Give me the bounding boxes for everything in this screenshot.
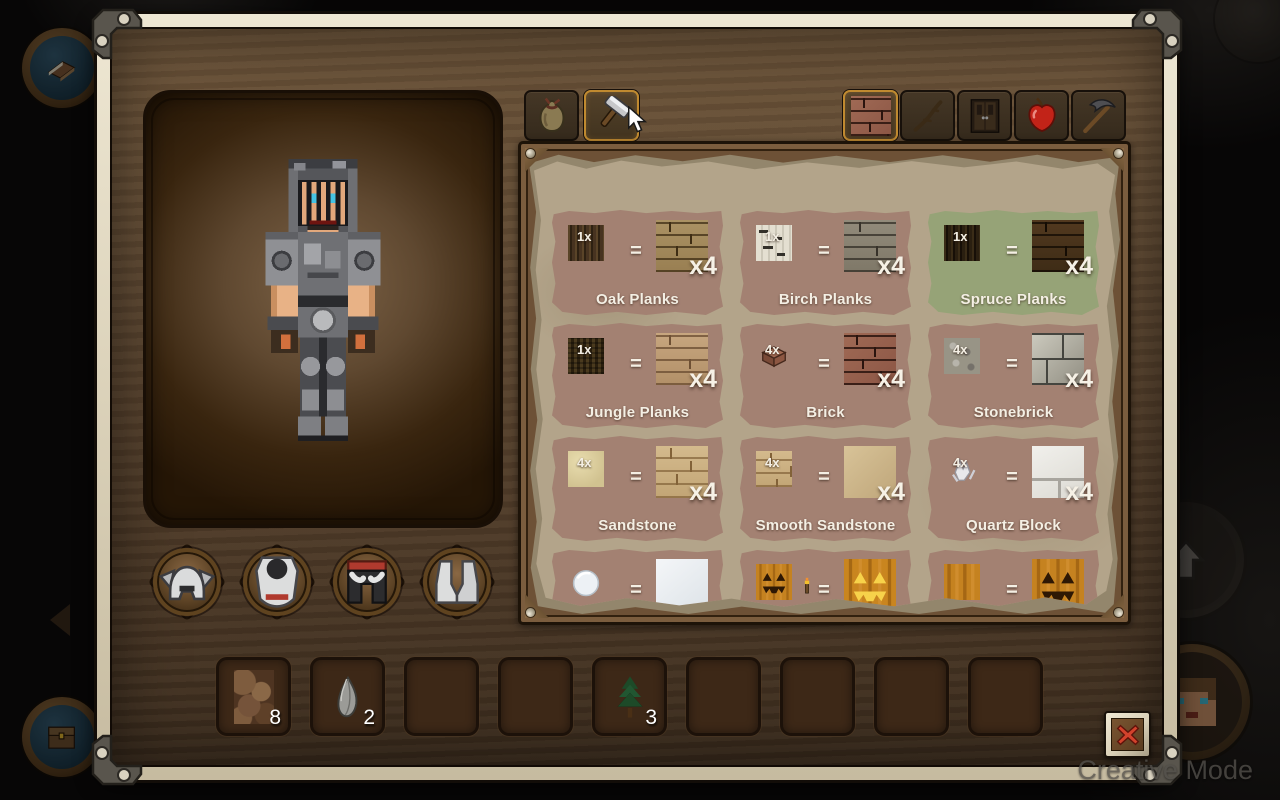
recipe-card-oak-planks[interactable]: 1x = x4 Oak Planks [552,210,723,315]
item-count: 8 [269,706,281,730]
result-count: x4 [1065,478,1093,507]
recipe-name: Sandstone [552,517,723,534]
recipe-card-spruce-planks[interactable]: 1x = x4 Spruce Planks [928,210,1099,315]
armor-slot-helmet[interactable] [150,545,224,619]
inset-corner [525,148,549,172]
inset-corner [525,594,549,618]
result-count: x4 [689,478,717,507]
tab-sticks[interactable] [900,90,955,141]
hotbar-slot-4[interactable] [498,657,573,736]
result-count: x4 [877,478,905,507]
book-icon [30,36,94,100]
category-tabs [843,90,1126,141]
recipe-card-jungle-planks[interactable]: 1x = x4 Jungle Planks [552,323,723,428]
equals-sign: = [812,353,836,376]
result: x4 [844,446,896,498]
recipe-list-panel: 1x = x4 Oak Planks 1x = x4 Birch Planks … [518,141,1131,625]
recipe-name: Quartz Block [928,517,1099,534]
recipe-card-partial-2[interactable]: = [740,549,911,609]
result-count: x4 [877,365,905,394]
hotbar-slot-8[interactable] [874,657,949,736]
ingredient-count: 1x [577,229,591,244]
pickaxe-icon [1079,96,1119,136]
equals-sign: = [1000,466,1024,489]
result: x4 [844,220,896,272]
equals-sign: = [812,240,836,263]
torch-icon [797,575,817,595]
frame-corner-bracket [91,8,149,66]
recipe-card-sandstone[interactable]: 4x = x4 Sandstone [552,436,723,541]
ingredient-count: 4x [765,342,779,357]
hotbar: 823 [216,657,1043,736]
equals-sign: = [1000,579,1024,602]
tab-inventory[interactable] [524,90,579,141]
crafting-window-surface: 1x = x4 Oak Planks 1x = x4 Birch Planks … [110,27,1164,767]
recipe-card-quartz-block[interactable]: 4x = x4 Quartz Block [928,436,1099,541]
recipe-name: Jungle Planks [552,404,723,421]
chest-icon [30,705,94,769]
result-count: x4 [689,365,717,394]
stick-icon [908,96,948,136]
character-preview-panel [143,90,503,528]
ingredient-count: 1x [953,229,967,244]
equals-sign: = [1000,240,1024,263]
recipe-name: Stonebrick [928,404,1099,421]
recipe-name: Spruce Planks [928,291,1099,308]
result: x4 [1032,220,1084,272]
result-count: x4 [689,252,717,281]
snow-block-icon [656,559,708,609]
inset-corner [1100,148,1124,172]
hotbar-slot-9[interactable] [968,657,1043,736]
journal-button[interactable] [22,28,102,108]
hotbar-slot-3[interactable] [404,657,479,736]
hotbar-slot-7[interactable] [780,657,855,736]
frame-corner-bracket [1125,728,1183,786]
frame-corner-bracket [91,728,149,786]
result-count: x4 [877,252,905,281]
snowball-icon [568,564,604,600]
ingredient-count: 4x [953,342,967,357]
hammer-icon [592,96,632,136]
armor-slot-boots[interactable] [420,545,494,619]
ingredient-count: 4x [577,455,591,470]
recipe-card-birch-planks[interactable]: 1x = x4 Birch Planks [740,210,911,315]
recipe-grid: 1x = x4 Oak Planks 1x = x4 Birch Planks … [534,157,1115,609]
hotbar-slot-5[interactable]: 3 [592,657,667,736]
result-count: x4 [1065,252,1093,281]
iron-chestplate-icon [247,552,307,612]
recipe-card-brick[interactable]: 4x = x4 Brick [740,323,911,428]
bag-icon [532,96,572,136]
recipe-card-smooth-sandstone[interactable]: 4x = x4 Smooth Sandstone [740,436,911,541]
tab-tools[interactable] [1071,90,1126,141]
door-icon [965,96,1005,136]
result: x4 [656,220,708,272]
result: x4 [844,333,896,385]
armor-slot-leggings[interactable] [330,545,404,619]
result: x4 [1032,333,1084,385]
result [656,559,708,609]
ingredient-count: 1x [765,229,779,244]
hotbar-slot-1[interactable]: 8 [216,657,291,736]
carved-pumpkin-icon [756,564,792,600]
character-preview [264,159,382,447]
tab-food[interactable] [1014,90,1069,141]
equals-sign: = [1000,353,1024,376]
ingredient-count: 1x [577,342,591,357]
tab-doors[interactable] [957,90,1012,141]
hotbar-slot-2[interactable]: 2 [310,657,385,736]
dirt-icon [234,670,274,724]
recipe-name: Oak Planks [552,291,723,308]
armor-slots [150,545,494,619]
equals-sign: = [624,240,648,263]
iron-leggings-icon [337,552,397,612]
equals-sign: = [812,466,836,489]
mode-tabs [524,90,639,141]
ingredient [568,564,604,600]
storage-button[interactable] [22,697,102,777]
recipe-name: Smooth Sandstone [740,517,911,534]
crafting-window: 1x = x4 Oak Planks 1x = x4 Birch Planks … [97,14,1177,780]
ingredient-count: 4x [765,455,779,470]
result-count: x4 [1065,365,1093,394]
result: x4 [1032,446,1084,498]
back-button[interactable] [44,600,76,640]
recipe-card-stonebrick[interactable]: 4x = x4 Stonebrick [928,323,1099,428]
ingredient-count: 4x [953,455,967,470]
hotbar-slot-6[interactable] [686,657,761,736]
tab-crafting[interactable] [584,90,639,141]
ingredient [944,564,980,600]
iron-boots-icon [427,552,487,612]
corner-faint-button [1215,0,1280,62]
inset-corner [1100,594,1124,618]
equals-sign: = [624,466,648,489]
armor-slot-chestplate[interactable] [240,545,314,619]
brick-block-icon [851,96,891,136]
game-screen: 1x = x4 Oak Planks 1x = x4 Birch Planks … [0,0,1280,800]
result: x4 [656,446,708,498]
item-count: 2 [363,706,375,730]
apple-icon [1022,96,1062,136]
iron-helmet-icon [157,552,217,612]
recipe-name: Birch Planks [740,291,911,308]
recipe-name: Brick [740,404,911,421]
frame-corner-bracket [1125,8,1183,66]
equals-sign: = [624,353,648,376]
chevron-left-icon [44,600,76,640]
item-count: 3 [645,706,657,730]
result: x4 [656,333,708,385]
ingredient [756,564,792,600]
pumpkin-icon [944,564,980,600]
tab-building-blocks[interactable] [843,90,898,141]
